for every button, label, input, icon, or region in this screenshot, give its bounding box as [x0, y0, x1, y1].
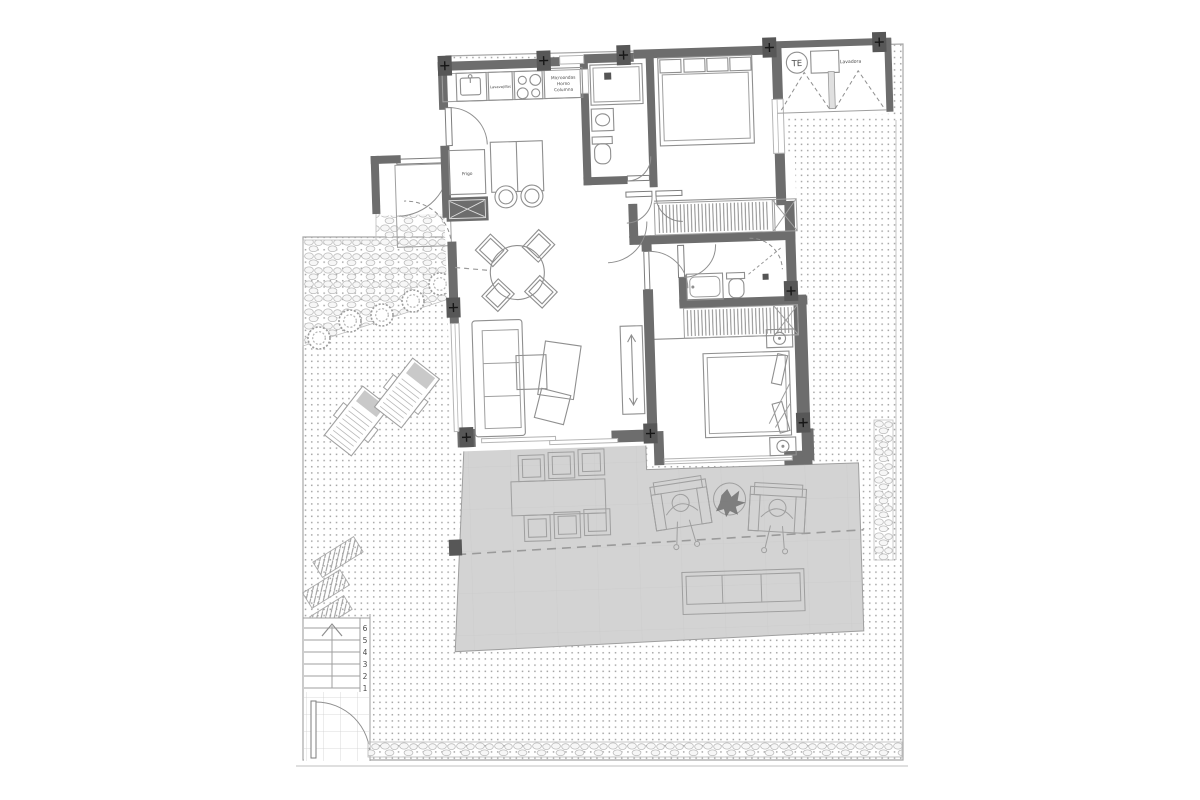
fridge-label: Frigo: [462, 171, 473, 177]
tall-unit-label: Columna: [554, 87, 574, 94]
column-marker: [643, 423, 658, 443]
stair-step-number: 4: [363, 648, 368, 657]
stair-step-number: 5: [363, 636, 368, 645]
bar-stool: [495, 186, 518, 209]
terrace: [449, 437, 867, 652]
tall-unit-label: Microondas: [551, 75, 576, 82]
exterior-stairs: 6 5 4 3 2 1: [303, 614, 370, 761]
tall-unit-label: Horno: [557, 81, 570, 87]
stair-step-number: 1: [363, 684, 368, 693]
shrub-icon: [308, 327, 330, 349]
stair-step-number: 6: [363, 624, 368, 633]
stone-path: [874, 420, 893, 560]
column-marker: [872, 32, 887, 52]
shrub-icon: [371, 304, 393, 326]
bathroom1-window: [580, 69, 589, 93]
dishwasher-label: Lavavajillas: [490, 85, 511, 90]
column-marker: [446, 297, 461, 317]
water-heater-label: TE: [790, 59, 802, 69]
column-marker: [616, 45, 631, 65]
kitchen-cabinet: [446, 196, 489, 221]
shrub-icon: [339, 310, 361, 332]
pavement-strip: [368, 742, 902, 757]
shrub-icon: [402, 290, 424, 312]
column-marker: [784, 281, 799, 301]
column-marker: [437, 56, 452, 76]
kitchen-window: [560, 55, 584, 64]
washer-label: Lavadora: [840, 59, 862, 66]
column-marker: [536, 50, 551, 70]
bar-stool: [521, 185, 544, 208]
column-marker: [762, 37, 777, 57]
column-marker: [459, 427, 474, 447]
column-marker: [449, 539, 462, 555]
column-marker: [796, 412, 811, 432]
stair-step-number: 3: [363, 660, 368, 669]
stair-step-number: 2: [363, 672, 368, 681]
floor-plan: 6 5 4 3 2 1: [0, 0, 1200, 800]
